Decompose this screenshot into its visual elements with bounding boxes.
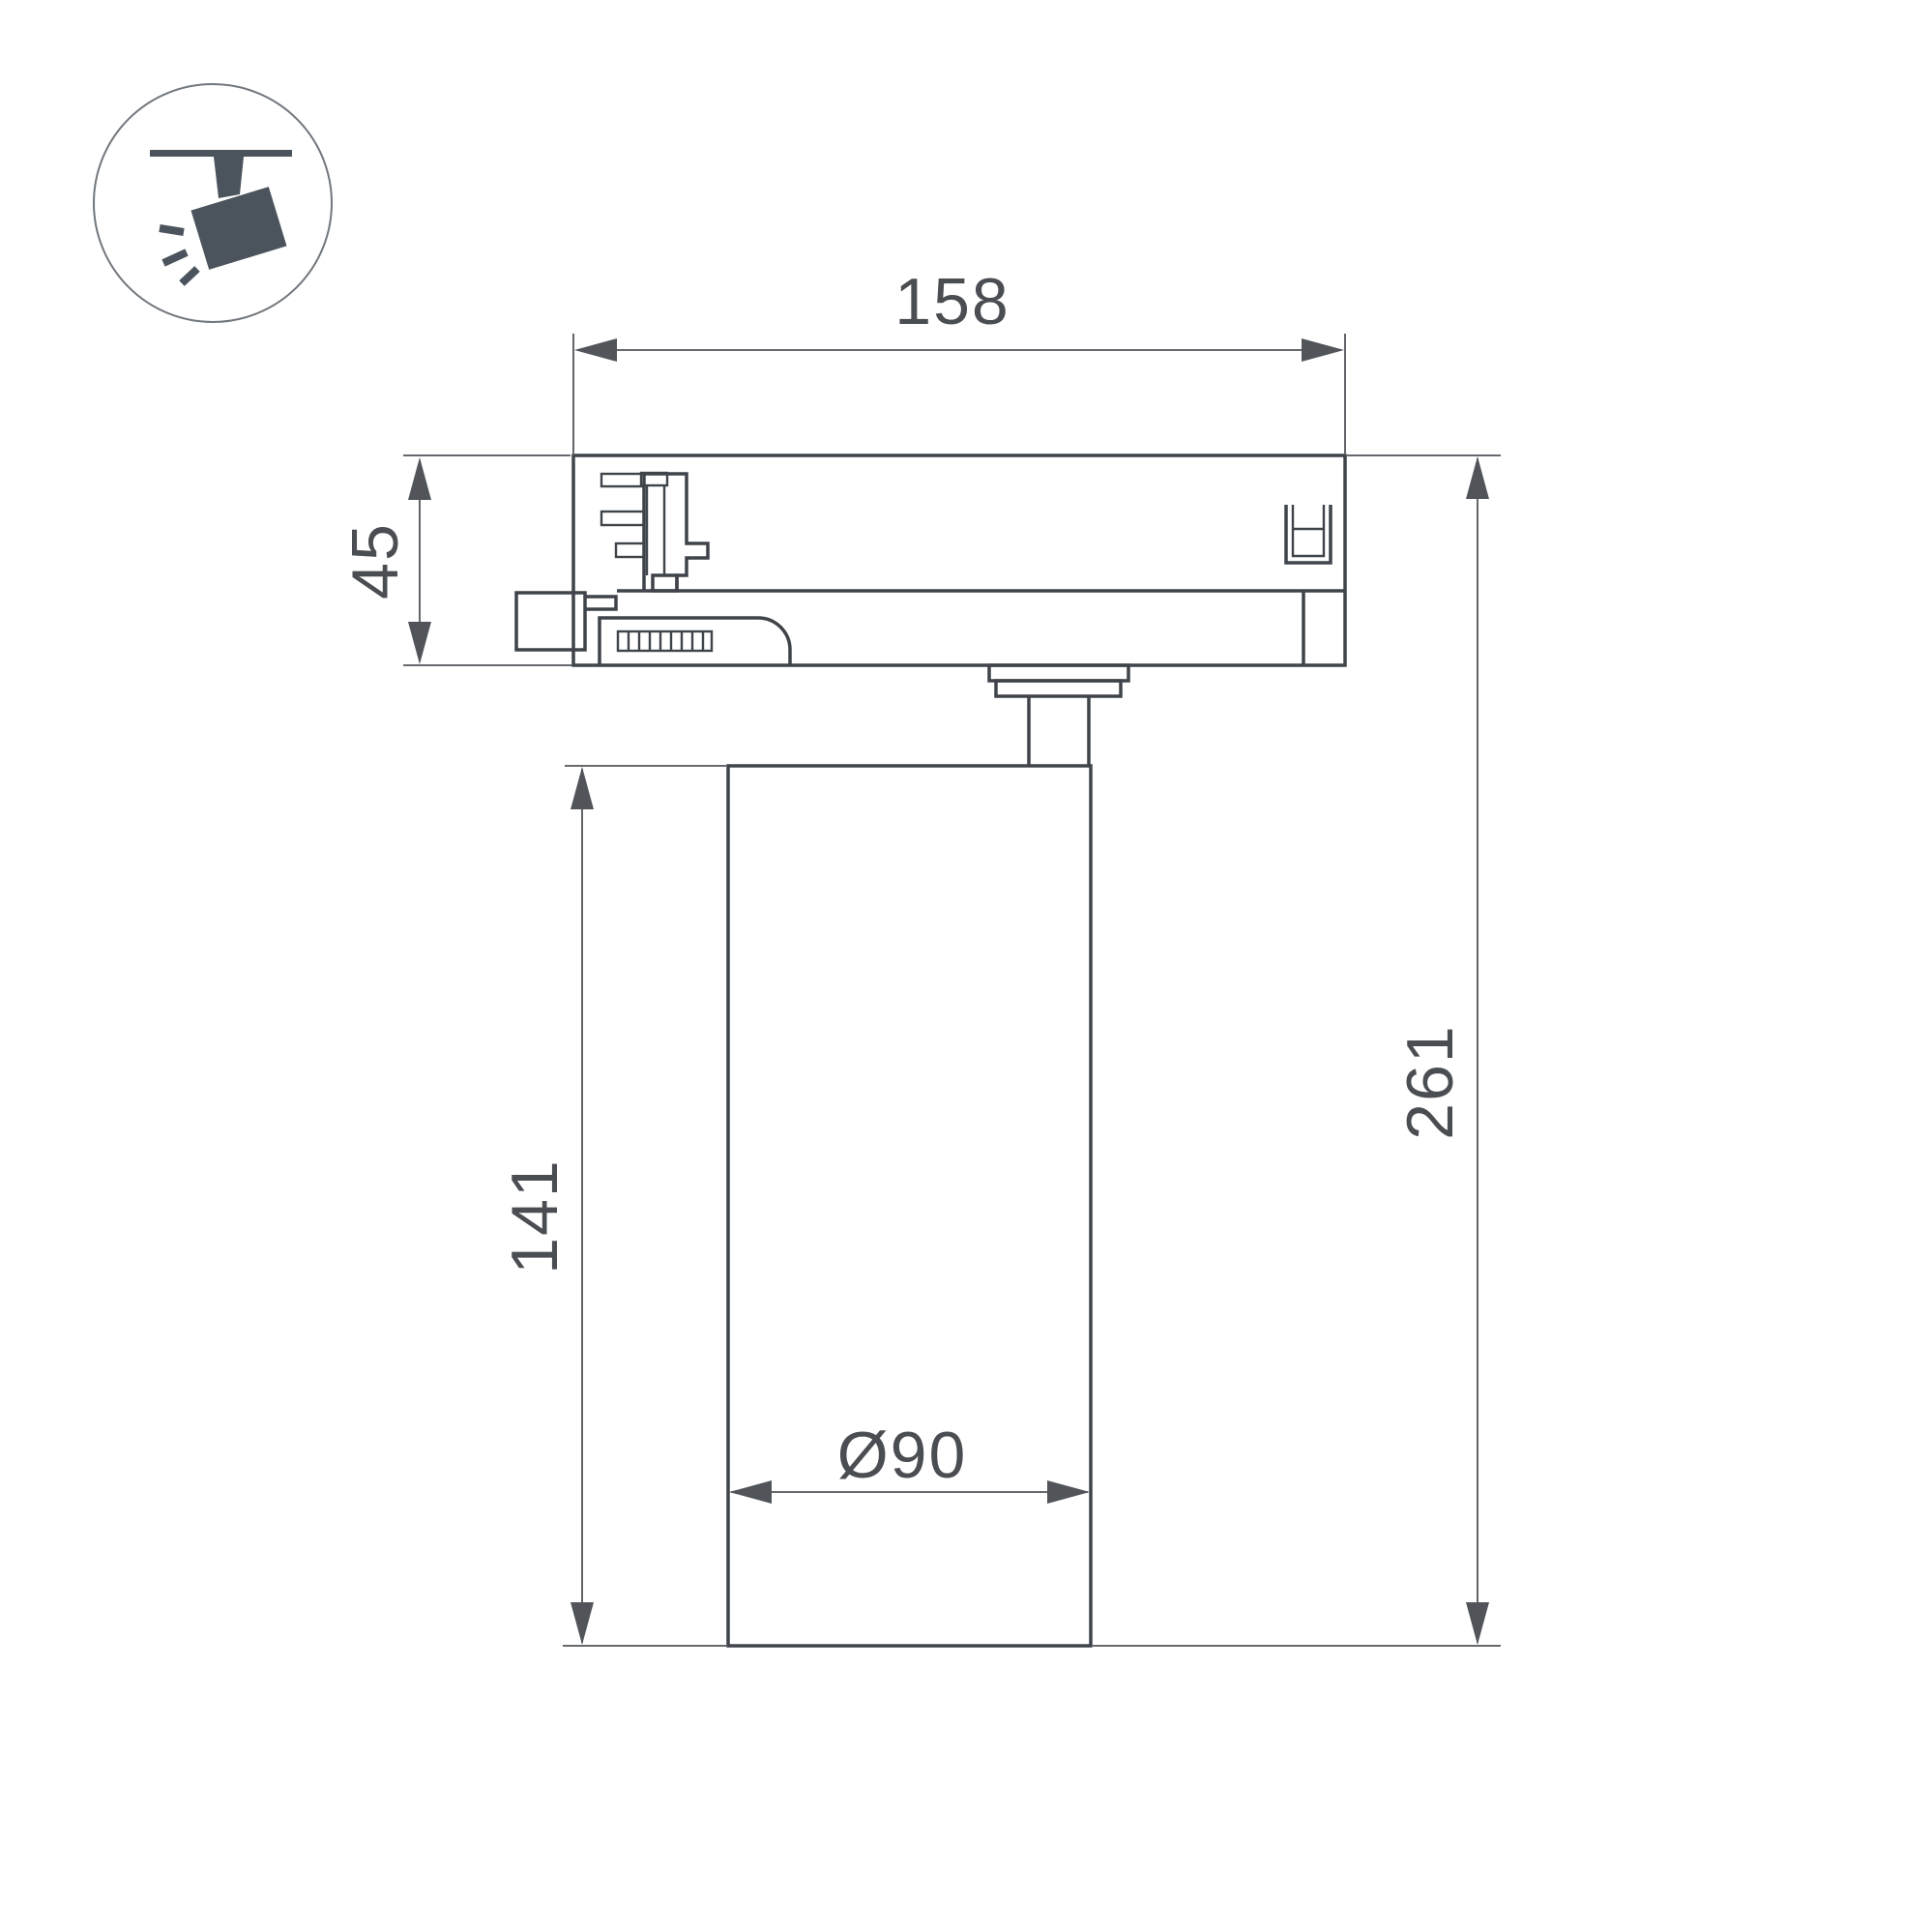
arrowhead-down-icon <box>571 1602 594 1645</box>
icon-light-rays <box>160 228 197 283</box>
lever-step <box>585 597 616 609</box>
contact-prong <box>616 543 644 557</box>
track-adapter <box>516 455 1345 665</box>
arrowhead-left-icon <box>574 338 617 362</box>
grip <box>600 618 790 665</box>
dimension-body-diameter: Ø90 <box>729 1419 1090 1504</box>
grip-teeth-frame <box>618 631 712 651</box>
contact-block-foot <box>653 575 677 591</box>
light-ray-icon <box>163 252 187 263</box>
icon-circle <box>94 84 332 322</box>
arrowhead-up-icon <box>571 767 594 809</box>
light-ray-icon <box>160 228 184 232</box>
technical-drawing-page: 158 45 141 261 Ø90 <box>0 0 1932 1932</box>
pivot-flange-step-1 <box>989 665 1128 681</box>
arrowhead-up-icon <box>408 457 431 500</box>
arrowhead-right-icon <box>1302 338 1344 362</box>
dimension-adapter-height: 45 <box>338 455 572 665</box>
light-ray-icon <box>182 269 197 283</box>
dim-label-total-height: 261 <box>1393 1024 1467 1139</box>
cylinder-body <box>728 766 1091 1646</box>
pivot-flange-step-2 <box>996 681 1121 696</box>
adapter-outline <box>573 455 1345 665</box>
icon-track-bar <box>150 150 292 157</box>
arrowhead-right-icon <box>1047 1480 1090 1504</box>
arrowhead-left-icon <box>729 1480 772 1504</box>
contact-prong <box>601 512 644 525</box>
grip-teeth <box>629 631 703 651</box>
arrowhead-down-icon <box>1466 1602 1489 1645</box>
dimension-total-height: 261 <box>1093 455 1501 1646</box>
dim-label-body-diameter: Ø90 <box>837 1419 968 1492</box>
dim-label-adapter-height: 45 <box>338 522 412 600</box>
contact-block <box>601 473 708 591</box>
contact-prong <box>601 474 644 486</box>
icon-stem <box>214 157 244 198</box>
latch-clip <box>1286 505 1331 563</box>
lamp-body-assembly <box>728 665 1128 1646</box>
track-light-dimension-drawing: 158 45 141 261 Ø90 <box>0 0 1932 1932</box>
dim-label-body-height: 141 <box>498 1158 571 1273</box>
icon-spot-head <box>190 187 286 270</box>
arrowhead-down-icon <box>408 622 431 664</box>
clip-inner <box>1293 505 1324 556</box>
dimension-adapter-width: 158 <box>573 265 1345 454</box>
track-spotlight-icon <box>94 84 332 322</box>
contact-block-outline <box>644 474 708 591</box>
dim-label-adapter-width: 158 <box>894 265 1010 338</box>
dimension-body-height: 141 <box>498 766 726 1646</box>
arrowhead-up-icon <box>1466 456 1489 499</box>
